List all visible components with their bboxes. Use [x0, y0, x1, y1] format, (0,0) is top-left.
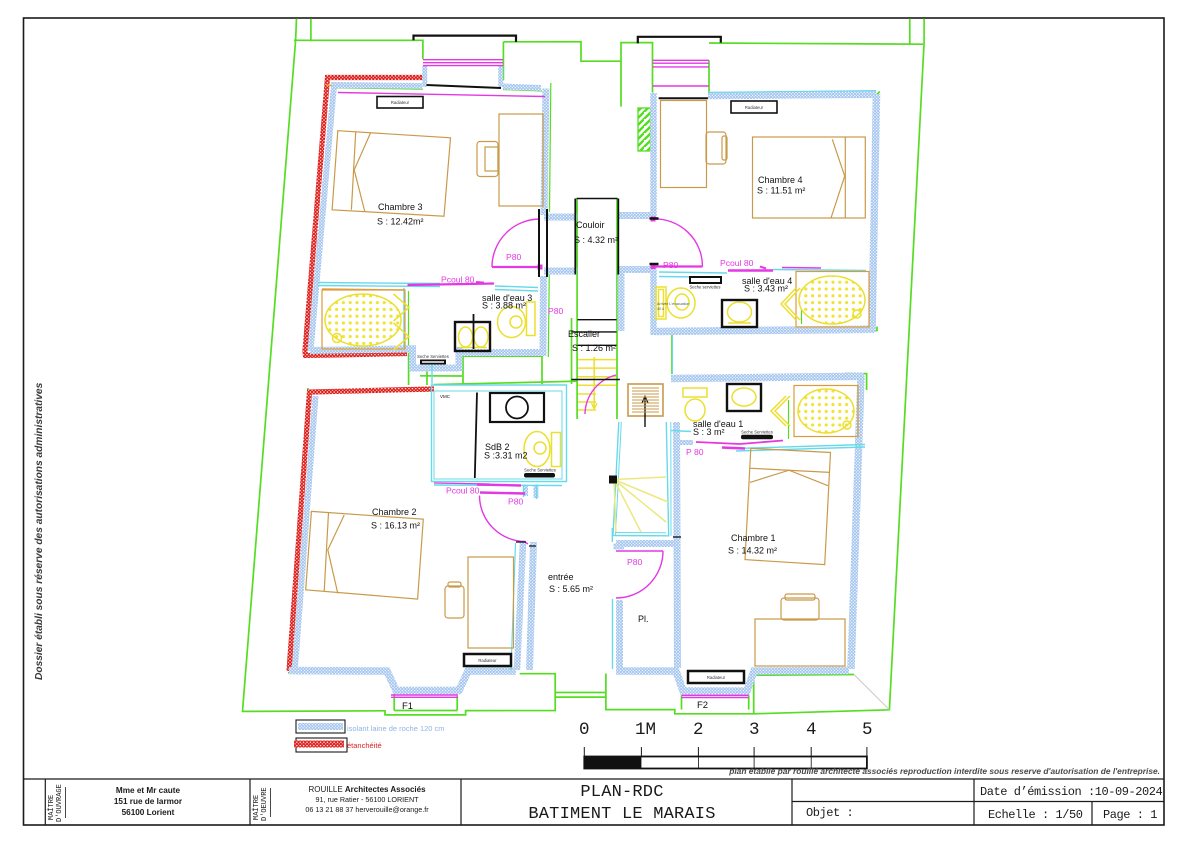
- svg-text:S :3.31 m2: S :3.31 m2: [484, 451, 528, 461]
- svg-text:56100 Lorient: 56100 Lorient: [122, 808, 175, 817]
- svg-text:Radiateur: Radiateur: [745, 105, 764, 110]
- svg-text:S : 5.65 m²: S : 5.65 m²: [549, 584, 593, 594]
- svg-text:S : 3 m²: S : 3 m²: [693, 427, 725, 437]
- svg-text:2: 2: [693, 720, 704, 740]
- svg-text:S : 16.13 m²: S : 16.13 m²: [371, 521, 420, 531]
- svg-text:D'OUVRAGE: D'OUVRAGE: [56, 784, 64, 822]
- svg-text:Mme et Mr caute: Mme et Mr caute: [116, 786, 181, 795]
- svg-text:Arrivée L'évacuation: Arrivée L'évacuation: [657, 302, 689, 306]
- svg-text:étanchéité: étanchéité: [347, 741, 382, 750]
- svg-text:06 13 21 88 37 herverouille@or: 06 13 21 88 37 herverouille@orange.fr: [305, 805, 429, 814]
- svg-text:S : 11.51 m²: S : 11.51 m²: [757, 186, 805, 196]
- svg-text:S : 14.32 m²: S : 14.32 m²: [728, 546, 777, 556]
- svg-text:entrée: entrée: [548, 572, 574, 582]
- svg-text:91, rue Ratier - 56100 LORIENT: 91, rue Ratier - 56100 LORIENT: [315, 795, 419, 804]
- svg-text:VMC: VMC: [440, 394, 451, 399]
- svg-text:BATIMENT LE MARAIS: BATIMENT LE MARAIS: [528, 805, 715, 824]
- svg-text:Pcoul 80: Pcoul 80: [446, 486, 480, 496]
- svg-text:Dossier établi sous réserve de: Dossier établi sous réserve des autorisa…: [34, 382, 45, 680]
- svg-text:Date d’émission :10-09-2024: Date d’émission :10-09-2024: [980, 785, 1163, 799]
- svg-text:plan établie par rouillé archi: plan établie par rouillé architecte asso…: [728, 766, 1160, 776]
- svg-text:P80: P80: [508, 497, 524, 507]
- svg-text:Seche Serviettes: Seche Serviettes: [741, 430, 773, 435]
- svg-text:P80: P80: [548, 306, 564, 316]
- svg-text:Seche serviettes: Seche serviettes: [690, 285, 721, 290]
- svg-text:S : 12.42m²: S : 12.42m²: [377, 217, 424, 227]
- svg-text:Seche Serviettes: Seche Serviettes: [524, 468, 556, 473]
- svg-text:P 80: P 80: [686, 447, 704, 457]
- svg-text:Couloir: Couloir: [576, 220, 605, 230]
- svg-text:1M: 1M: [635, 720, 656, 740]
- svg-text:F2: F2: [697, 700, 708, 711]
- svg-text:Chambre 1: Chambre 1: [731, 533, 776, 543]
- svg-text:Radiateur: Radiateur: [391, 100, 410, 105]
- svg-text:Objet :: Objet :: [806, 806, 853, 820]
- svg-text:Echelle : 1/50: Echelle : 1/50: [988, 808, 1083, 822]
- svg-text:Seche Serviettes: Seche Serviettes: [417, 354, 449, 359]
- svg-text:3: 3: [749, 720, 760, 740]
- svg-text:Chambre 2: Chambre 2: [372, 507, 417, 517]
- svg-text:ROUILLE Architectes Associés: ROUILLE Architectes Associés: [308, 785, 426, 794]
- svg-text:Pcoul 80: Pcoul 80: [441, 275, 475, 285]
- svg-text:151 rue de larmor: 151 rue de larmor: [114, 797, 183, 806]
- svg-text:Page : 1: Page : 1: [1103, 808, 1157, 822]
- svg-text:Chambre 3: Chambre 3: [378, 202, 423, 212]
- svg-text:S : 3.43 m²: S : 3.43 m²: [744, 284, 788, 294]
- svg-text:Escalier: Escalier: [568, 329, 600, 339]
- svg-text:F1: F1: [402, 701, 413, 712]
- svg-text:4: 4: [806, 720, 817, 740]
- svg-text:P80: P80: [663, 260, 679, 270]
- svg-text:D'OEUVRE: D'OEUVRE: [261, 787, 269, 821]
- svg-text:Chambre 4: Chambre 4: [758, 175, 803, 185]
- svg-text:0: 0: [579, 720, 590, 740]
- svg-text:MAÎTRE: MAÎTRE: [252, 795, 261, 820]
- svg-text:P80: P80: [506, 252, 522, 262]
- svg-text:S : 4.32 m²: S : 4.32 m²: [574, 235, 618, 245]
- svg-text:isolant laine de roche 120 cm: isolant laine de roche 120 cm: [347, 724, 445, 733]
- svg-text:MAÎTRE: MAÎTRE: [47, 795, 56, 820]
- svg-text:P80: P80: [627, 557, 643, 567]
- svg-text:Pl.: Pl.: [638, 614, 649, 624]
- svg-text:40.4: 40.4: [657, 307, 664, 311]
- svg-text:S : 1.26 m²: S : 1.26 m²: [572, 343, 616, 353]
- svg-text:Radiateur: Radiateur: [707, 675, 726, 680]
- svg-text:PLAN-RDC: PLAN-RDC: [580, 783, 663, 802]
- svg-text:S : 3.88 m²: S : 3.88 m²: [482, 301, 526, 311]
- svg-text:Pcoul 80: Pcoul 80: [720, 258, 754, 268]
- svg-text:5: 5: [862, 720, 873, 740]
- svg-text:Radiateur: Radiateur: [478, 658, 497, 663]
